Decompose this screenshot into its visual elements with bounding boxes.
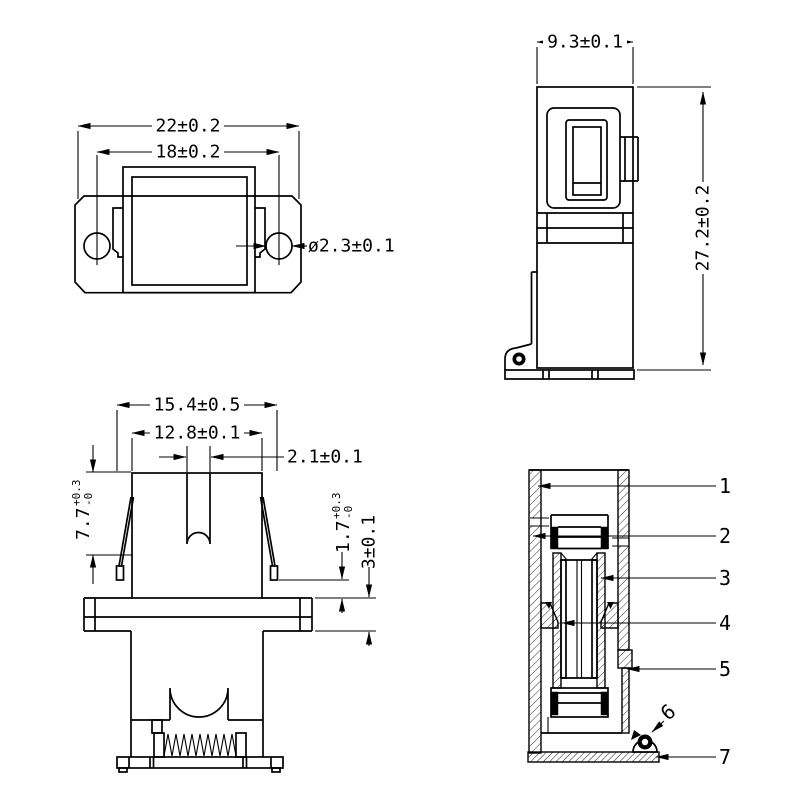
dim-bottom-flange-thickness: 3±0.1: [359, 515, 380, 569]
spring: [164, 734, 236, 756]
dim-bottom-depth: 7.7 +0.3 -0: [70, 480, 95, 541]
svg-text:-0: -0: [82, 493, 95, 506]
section-view-callouts: 1 2 3 4 5 6 7: [533, 474, 731, 769]
dim-bottom-outer-width: 15.4±0.5: [154, 395, 241, 416]
front-view-outline: [75, 167, 301, 293]
side-view: 9.3±0.1 27.2±0.2: [505, 32, 714, 380]
technical-drawing-page: 22±0.2 18±0.2 ø2.3±0.1: [0, 0, 800, 800]
part-label-4: 4: [719, 611, 731, 635]
dim-bottom-inner-width: 12.8±0.1: [154, 423, 241, 444]
part-label-5: 5: [719, 657, 731, 681]
dim-side-width: 9.3±0.1: [547, 32, 623, 53]
front-view: 22±0.2 18±0.2 ø2.3±0.1: [75, 116, 395, 293]
part-label-1: 1: [719, 474, 731, 498]
dim-bottom-lip: 1.7 +0.3 -0: [330, 493, 355, 554]
part-label-2: 2: [719, 524, 731, 548]
section-view: 1 2 3 4 5 6 7: [528, 470, 731, 769]
front-view-dimensions: 22±0.2 18±0.2 ø2.3±0.1: [78, 116, 395, 266]
part-label-6: 6: [656, 699, 681, 725]
bottom-view-outline: [84, 473, 312, 772]
svg-text:1.7: 1.7: [333, 520, 354, 553]
part-label-7: 7: [719, 745, 731, 769]
svg-text:7.7: 7.7: [73, 507, 94, 540]
drawing-svg: 22±0.2 18±0.2 ø2.3±0.1: [0, 0, 800, 800]
side-view-dimensions: 9.3±0.1 27.2±0.2: [537, 32, 714, 371]
dim-front-hole-pitch: 18±0.2: [155, 142, 220, 163]
bottom-view: 15.4±0.5 12.8±0.1 2.1±0.1 7.7 +0.3 -0: [70, 395, 380, 773]
dim-side-height: 27.2±0.2: [693, 185, 714, 272]
side-view-outline: [505, 87, 638, 379]
bottom-view-dimensions: 15.4±0.5 12.8±0.1 2.1±0.1 7.7 +0.3 -0: [70, 395, 380, 647]
dim-front-outer-width: 22±0.2: [155, 116, 220, 137]
section-view-outline: [528, 470, 659, 762]
dim-front-hole-dia: ø2.3±0.1: [308, 236, 395, 257]
svg-text:-0: -0: [342, 506, 355, 519]
part-label-3: 3: [719, 566, 731, 590]
dim-bottom-slot-width: 2.1±0.1: [287, 447, 363, 468]
